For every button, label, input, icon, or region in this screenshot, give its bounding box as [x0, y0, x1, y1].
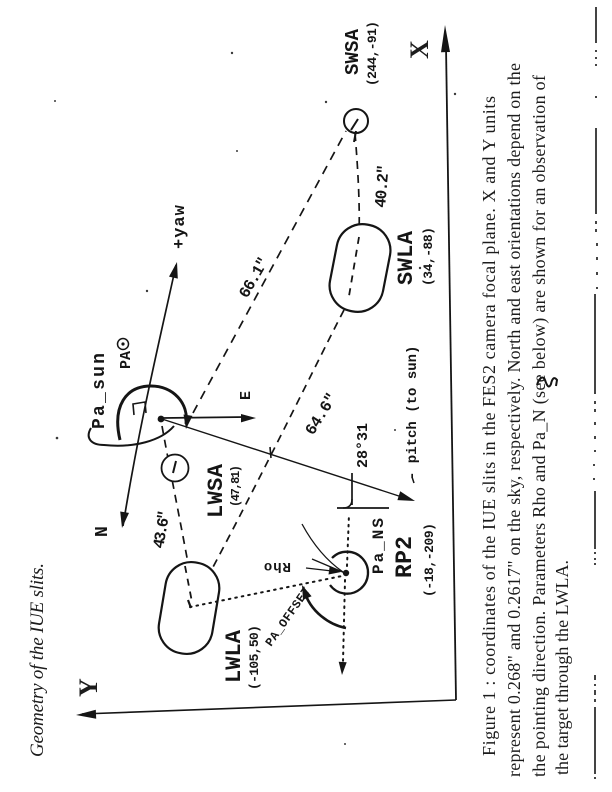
- svg-text:the pointing direction. Parame: the pointing direction. Parameters Rho a…: [529, 75, 550, 777]
- svg-text:(47,81): (47,81): [229, 465, 243, 507]
- svg-text:(244,-91): (244,-91): [365, 21, 380, 86]
- svg-text:RP2: RP2: [392, 536, 418, 578]
- svg-text:Figure 1 : coordinates of the: Figure 1 : coordinates of the IUE slits …: [479, 96, 499, 756]
- svg-text:(34,-88): (34,-88): [421, 227, 436, 286]
- svg-text:SWSA: SWSA: [342, 28, 364, 75]
- svg-text:N: N: [93, 526, 113, 537]
- svg-text:represent 0.268" and 0.2617" o: represent 0.268" and 0.2617" on the sky,…: [504, 63, 524, 777]
- svg-text:Geometry of the IUE slits.: Geometry of the IUE slits.: [27, 563, 48, 757]
- svg-text:Rho: Rho: [263, 558, 291, 574]
- svg-text:(-18,-209): (-18,-209): [422, 523, 437, 597]
- svg-text:+yaw: +yaw: [171, 204, 190, 249]
- svg-text:E: E: [238, 391, 255, 400]
- svg-text:28°31: 28°31: [355, 423, 372, 468]
- svg-text:PA: PA: [118, 351, 135, 369]
- svg-text:SWLA: SWLA: [394, 230, 419, 285]
- svg-text:40.2": 40.2": [372, 164, 394, 208]
- svg-text:X: X: [405, 40, 434, 59]
- svg-text:Pa_NS: Pa_NS: [370, 518, 388, 574]
- svg-text:Y: Y: [74, 678, 103, 697]
- svg-text:LWLA: LWLA: [222, 629, 247, 683]
- svg-text:- pitch (to sun): - pitch (to sun): [405, 346, 421, 480]
- svg-text:the target through the LWLA.: the target through the LWLA.: [552, 560, 572, 775]
- svg-text:(-105,50): (-105,50): [247, 625, 262, 690]
- svg-text:LWSA: LWSA: [204, 463, 229, 518]
